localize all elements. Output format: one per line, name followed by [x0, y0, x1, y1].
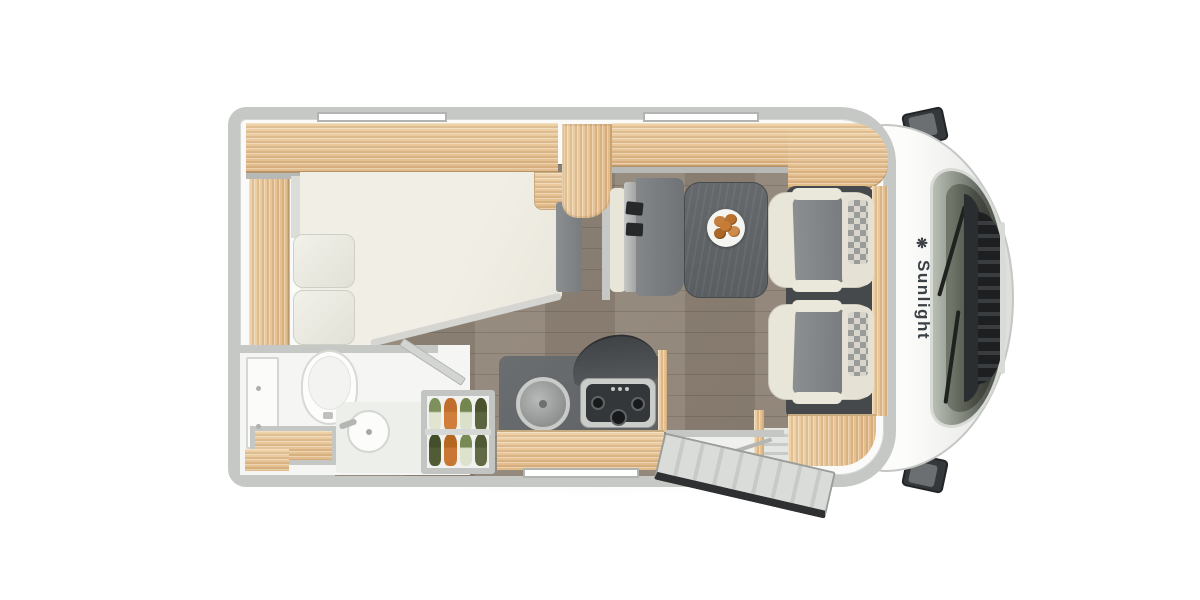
hob-knob-icon: [618, 387, 622, 391]
flower-icon: ❋: [915, 236, 931, 254]
kitchen-side-pillar: [658, 350, 667, 432]
hob-knob-icon: [611, 387, 615, 391]
seat-armrest: [792, 300, 842, 312]
burner-icon: [591, 396, 605, 410]
front-grille: [978, 212, 1002, 384]
rear-wall-shelf: [249, 179, 290, 347]
overhead-cabinet-dinette: [612, 123, 790, 167]
window-slot: [317, 112, 447, 122]
carrot-icon: [444, 398, 456, 431]
broccoli-icon: [475, 398, 487, 431]
seat-checker-trim: [848, 312, 868, 376]
seat-armrest: [792, 392, 842, 404]
burner-icon: [610, 409, 627, 426]
seat-center-panel: [792, 307, 845, 397]
overhead-cabinet-cab: [788, 123, 888, 189]
pantry-shelf: [425, 429, 491, 435]
hob-knob-icon: [625, 387, 629, 391]
sink-drain-icon: [539, 400, 547, 408]
bed-pillow: [293, 234, 355, 288]
toilet-flush-button: [323, 412, 333, 419]
dinette-bench-backrest: [636, 178, 684, 296]
leek-icon: [460, 398, 472, 431]
window-slot: [523, 468, 639, 478]
leek-icon: [429, 398, 441, 431]
entry-wardrobe-cabinet: [562, 124, 612, 218]
floorplan-canvas: ❋ Sunlight: [0, 0, 1200, 600]
shower-drain-icon: [256, 386, 261, 391]
toilet-lid: [308, 356, 351, 410]
seatbelt-buckle-icon: [626, 223, 644, 237]
cab-side-wood-trim: [872, 186, 888, 416]
window-slot: [643, 112, 759, 122]
brand-logo-text: Sunlight: [913, 260, 933, 340]
brand-logo: ❋ Sunlight: [904, 236, 942, 388]
bumper-chrome-strip: [1000, 222, 1005, 374]
leek-icon: [460, 434, 472, 467]
bathroom-ledge: [245, 449, 289, 471]
food-item-icon: [720, 221, 732, 232]
broccoli-icon: [429, 434, 441, 467]
seat-center-panel: [792, 195, 845, 285]
seatbelt-buckle-icon: [625, 201, 643, 216]
broccoli-icon: [475, 434, 487, 467]
overhead-cabinet-bed: [246, 123, 558, 173]
shower-drain-icon: [256, 424, 261, 429]
cabinet-shelf-edge: [612, 167, 790, 173]
bed-pillow: [293, 290, 355, 345]
carrot-icon: [444, 434, 456, 467]
food-plate: [707, 209, 745, 247]
seat-armrest: [792, 188, 842, 200]
burner-icon: [631, 397, 645, 411]
sink-drain-icon: [366, 429, 372, 435]
kitchen-front-cabinet: [497, 430, 664, 470]
seat-checker-trim: [848, 200, 868, 264]
seat-armrest: [792, 280, 842, 292]
